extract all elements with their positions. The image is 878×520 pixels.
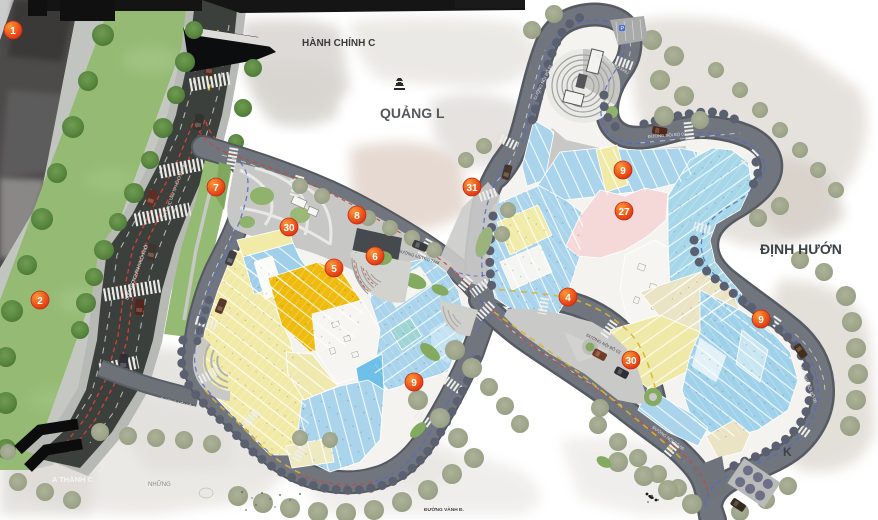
svg-text:4: 4 bbox=[565, 293, 571, 304]
svg-text:ĐỊNH HƯỚN: ĐỊNH HƯỚN bbox=[760, 240, 842, 257]
svg-text:NHỮNG: NHỮNG bbox=[148, 481, 171, 488]
svg-text:2: 2 bbox=[37, 296, 43, 307]
svg-text:5: 5 bbox=[331, 264, 337, 275]
svg-text:HÀNH CHÍNH C: HÀNH CHÍNH C bbox=[302, 36, 375, 49]
svg-text:1: 1 bbox=[10, 26, 16, 37]
svg-text:QUẢNG L: QUẢNG L bbox=[380, 105, 445, 121]
svg-text:7: 7 bbox=[213, 183, 219, 194]
svg-text:9: 9 bbox=[758, 315, 764, 326]
svg-text:6: 6 bbox=[372, 252, 378, 263]
svg-text:A THÀNH C: A THÀNH C bbox=[52, 475, 94, 484]
svg-text:31: 31 bbox=[466, 183, 478, 194]
svg-text:9: 9 bbox=[620, 166, 626, 177]
svg-text:30: 30 bbox=[283, 223, 295, 234]
svg-text:8: 8 bbox=[354, 211, 360, 222]
svg-text:P: P bbox=[621, 26, 625, 32]
svg-text:K: K bbox=[783, 445, 792, 459]
svg-text:27: 27 bbox=[618, 207, 630, 218]
svg-text:9: 9 bbox=[411, 378, 417, 389]
svg-text:30: 30 bbox=[625, 356, 637, 367]
